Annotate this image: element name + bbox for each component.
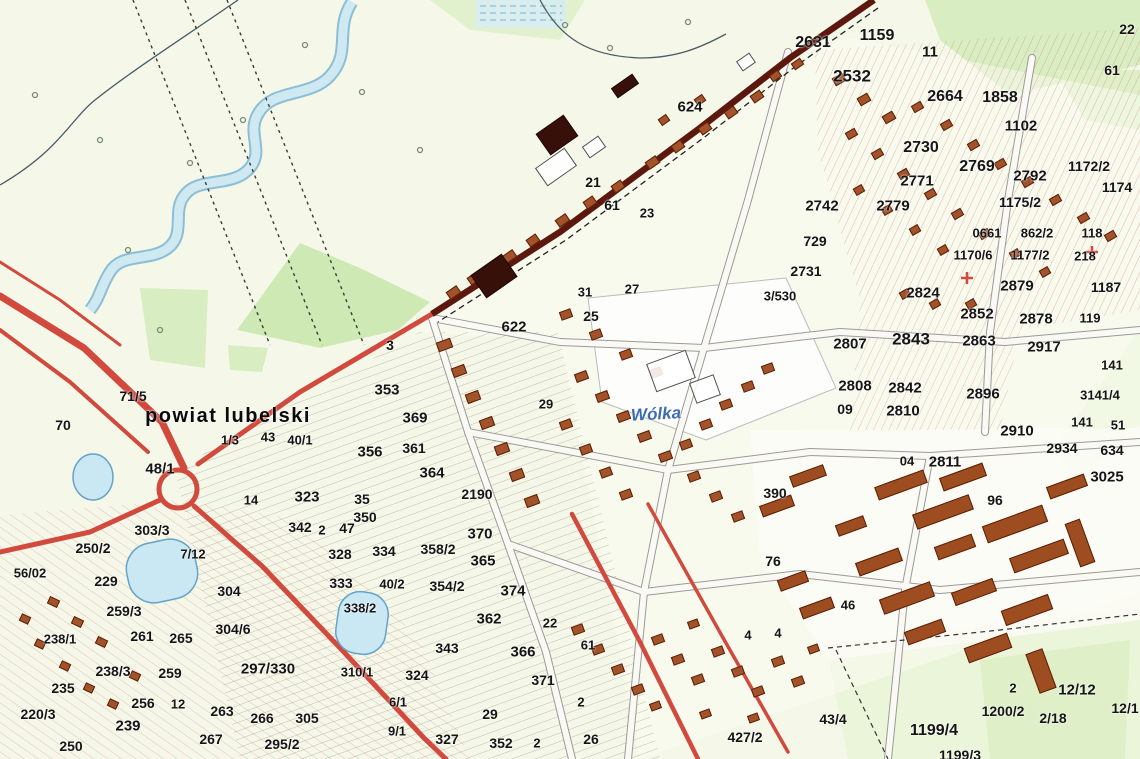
parcel-label: 370 xyxy=(467,527,492,542)
parcel-label: 364 xyxy=(419,466,444,481)
parcel-label: 323 xyxy=(294,490,319,505)
parcel-label: 261 xyxy=(130,629,153,643)
parcel-label: 22 xyxy=(543,617,557,630)
parcel-label: 267 xyxy=(199,732,222,746)
parcel-label: 390 xyxy=(763,486,786,500)
parcel-label: 369 xyxy=(402,411,427,426)
parcel-label: 229 xyxy=(94,574,117,588)
parcel-label: 2934 xyxy=(1046,441,1077,455)
parcel-label: 328 xyxy=(328,547,351,561)
parcel-label: 2807 xyxy=(833,337,866,352)
parcel-label: 1/3 xyxy=(221,434,239,447)
parcel-label: 04 xyxy=(900,455,914,468)
region-label: powiat lubelski xyxy=(145,406,311,426)
parcel-label: 366 xyxy=(510,645,535,660)
parcel-label: 43 xyxy=(261,431,275,444)
parcel-label: 4 xyxy=(774,627,781,640)
parcel-label: 305 xyxy=(295,711,318,725)
place-label: Wólka xyxy=(631,404,682,424)
parcel-label: 43/4 xyxy=(819,712,846,726)
parcel-label: 263 xyxy=(210,704,233,718)
parcel-label: 333 xyxy=(329,576,352,590)
parcel-label: 304 xyxy=(217,584,240,598)
parcel-label: 334 xyxy=(372,544,395,558)
parcel-label: 2810 xyxy=(886,404,919,419)
parcel-label: 2824 xyxy=(906,286,939,301)
parcel-label: 1172/2 xyxy=(1068,159,1110,173)
parcel-label: 141 xyxy=(1101,359,1123,372)
parcel-label: 2731 xyxy=(790,264,821,278)
parcel-label: 29 xyxy=(539,398,553,411)
parcel-label: 3/530 xyxy=(764,290,797,303)
parcel-label: 327 xyxy=(435,732,458,746)
parcel-label: 250 xyxy=(59,739,82,753)
parcel-label: 0661 xyxy=(973,227,1002,240)
parcel-label: 12/1 xyxy=(1111,701,1138,715)
parcel-label: 634 xyxy=(1100,443,1123,457)
parcel-label: 6/1 xyxy=(389,696,407,709)
parcel-label: 3 xyxy=(386,338,394,352)
parcel-label: 61 xyxy=(581,639,595,652)
parcel-label: 250/2 xyxy=(75,541,110,555)
parcel-label: 9/1 xyxy=(388,725,406,738)
parcel-label: 12 xyxy=(171,698,185,711)
parcel-label: 239 xyxy=(115,719,140,734)
parcel-label: 2779 xyxy=(876,199,909,214)
parcel-label: 2811 xyxy=(929,455,962,470)
parcel-label: 343 xyxy=(435,641,458,655)
parcel-label: 304/6 xyxy=(215,622,250,636)
parcel-label: 22 xyxy=(1119,22,1135,36)
parcel-label: 14 xyxy=(244,494,258,507)
parcel-label: 1177/2 xyxy=(1010,249,1049,262)
parcel-label: 51 xyxy=(1111,419,1125,432)
parcel-label: 371 xyxy=(531,673,554,687)
parcel-label: 1159 xyxy=(860,28,895,44)
parcel-label: 624 xyxy=(677,100,702,115)
parcel-label: 76 xyxy=(765,554,781,568)
parcel-label: 338/2 xyxy=(344,602,377,615)
parcel-label: 2843 xyxy=(892,331,930,348)
parcel-label: 374 xyxy=(500,584,525,599)
parcel-label: 27 xyxy=(625,283,639,296)
parcel-label: 353 xyxy=(374,383,399,398)
parcel-label: 141 xyxy=(1071,416,1093,429)
parcel-label: 25 xyxy=(583,309,599,323)
parcel-label: 2/18 xyxy=(1039,711,1066,725)
parcel-label: 61 xyxy=(1104,63,1120,77)
parcel-label: 220/3 xyxy=(20,707,55,721)
parcel-label: 265 xyxy=(169,631,192,645)
map-canvas[interactable]: 2631115911253226641858226111022730276927… xyxy=(0,0,1140,759)
parcel-label: 2532 xyxy=(833,68,871,85)
parcel-label: 297/330 xyxy=(241,662,295,677)
parcel-label: 29 xyxy=(482,707,498,721)
parcel-label: 295/2 xyxy=(264,737,299,751)
parcel-label: 259 xyxy=(158,666,181,680)
parcel-label: 46 xyxy=(841,599,855,612)
parcel-label: 362 xyxy=(476,612,501,627)
parcel-label: 70 xyxy=(55,418,71,432)
parcel-label: 2631 xyxy=(795,35,831,51)
parcel-label: 23 xyxy=(640,207,654,220)
parcel-label: 1199/4 xyxy=(910,723,958,739)
parcel-label: 266 xyxy=(250,711,273,725)
parcel-label: 2852 xyxy=(960,307,993,322)
parcel-label: 31 xyxy=(578,286,592,299)
parcel-label: 358/2 xyxy=(420,542,455,556)
parcel-label: 361 xyxy=(402,441,425,455)
parcel-label: 2 xyxy=(1009,682,1016,695)
parcel-label: 3141/4 xyxy=(1080,389,1120,402)
parcel-label: 2769 xyxy=(959,159,995,175)
parcel-label: 2792 xyxy=(1013,169,1046,184)
parcel-label: 2878 xyxy=(1019,312,1052,327)
parcel-label: 2842 xyxy=(888,381,921,396)
parcel-label: 96 xyxy=(987,493,1003,507)
parcel-label: 2 xyxy=(533,737,540,750)
parcel-label: 4 xyxy=(744,629,751,642)
labels-layer: 2631115911253226641858226111022730276927… xyxy=(0,0,1140,759)
parcel-label: 342 xyxy=(288,520,311,534)
parcel-label: 09 xyxy=(837,402,853,416)
parcel-label: 729 xyxy=(803,234,826,248)
parcel-label: 238/1 xyxy=(44,633,77,646)
parcel-label: 11 xyxy=(922,45,938,60)
parcel-label: 1199/3 xyxy=(939,748,981,759)
parcel-label: 354/2 xyxy=(429,579,464,593)
parcel-label: 2730 xyxy=(903,140,939,156)
parcel-label: 2863 xyxy=(962,334,995,349)
parcel-label: 356 xyxy=(357,445,382,460)
parcel-label: 2 xyxy=(318,524,325,537)
parcel-label: 71/5 xyxy=(119,389,146,403)
parcel-label: 119 xyxy=(1080,312,1101,325)
parcel-label: 2664 xyxy=(927,89,963,105)
parcel-label: 1858 xyxy=(982,90,1018,106)
parcel-label: 256 xyxy=(131,696,154,710)
parcel-label: 310/1 xyxy=(341,666,374,679)
parcel-label: 2917 xyxy=(1027,340,1060,355)
parcel-label: 3025 xyxy=(1090,470,1123,485)
parcel-label: 47 xyxy=(339,521,355,535)
parcel-label: 235 xyxy=(51,681,74,695)
parcel-label: 2771 xyxy=(900,174,933,189)
parcel-label: 324 xyxy=(405,668,428,682)
parcel-label: 35 xyxy=(354,492,370,506)
parcel-label: 2 xyxy=(577,696,584,709)
parcel-label: 2808 xyxy=(838,379,871,394)
parcel-label: 1187 xyxy=(1091,280,1121,294)
parcel-label: 1200/2 xyxy=(982,704,1025,718)
parcel-label: 21 xyxy=(585,175,601,189)
parcel-label: 622 xyxy=(501,320,526,335)
parcel-label: 1102 xyxy=(1005,119,1038,134)
parcel-label: 61 xyxy=(604,198,620,212)
parcel-label: 7/12 xyxy=(180,548,205,561)
parcel-label: 56/02 xyxy=(14,567,47,580)
parcel-label: 118 xyxy=(1082,227,1103,240)
parcel-label: 862/2 xyxy=(1021,227,1054,240)
parcel-label: 2190 xyxy=(461,487,492,501)
parcel-label: 2742 xyxy=(805,199,838,214)
parcel-label: 40/1 xyxy=(287,434,312,447)
parcel-label: 2896 xyxy=(966,387,999,402)
parcel-label: 352 xyxy=(489,736,512,750)
parcel-label: 427/2 xyxy=(727,730,762,744)
parcel-label: 2910 xyxy=(1000,424,1033,439)
parcel-label: 365 xyxy=(470,554,495,569)
parcel-label: 259/3 xyxy=(106,604,141,618)
parcel-label: 218 xyxy=(1074,250,1096,263)
parcel-label: 1170/6 xyxy=(953,249,992,262)
parcel-label: 303/3 xyxy=(134,523,169,537)
parcel-label: 48/1 xyxy=(145,462,174,477)
parcel-label: 12/12 xyxy=(1058,683,1096,698)
parcel-label: 2879 xyxy=(1000,279,1033,294)
parcel-label: 350 xyxy=(353,510,376,524)
parcel-label: 26 xyxy=(583,732,599,746)
parcel-label: 238/3 xyxy=(95,664,130,678)
parcel-label: 1175/2 xyxy=(999,195,1041,209)
parcel-label: 40/2 xyxy=(379,578,404,591)
parcel-label: 1174 xyxy=(1102,180,1132,194)
